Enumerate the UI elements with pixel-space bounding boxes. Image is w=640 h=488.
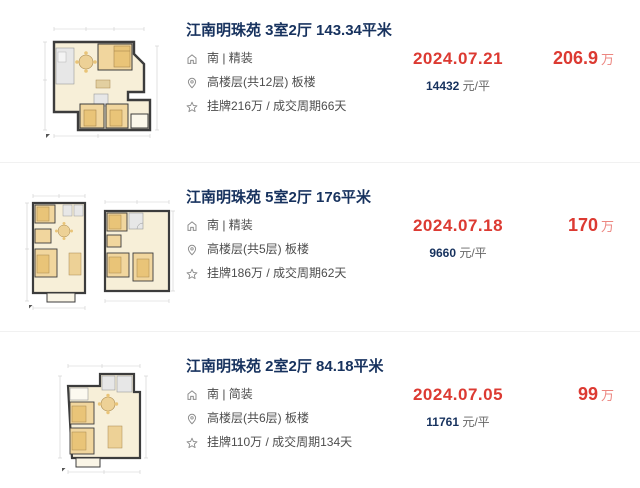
home-icon [186,220,198,232]
floor-plan-image[interactable] [44,358,156,476]
star-icon [186,101,198,113]
deal-listings-page: 江南明珠苑 3室2厅 143.34平米 南 | 精装 高楼层(共12层) 板楼 … [0,0,640,488]
deal-date: 2024.07.18 [402,216,514,236]
home-icon [186,389,198,401]
floor-text: 高楼层(共6层) 板楼 [207,412,309,425]
unit-price-suffix: 元/平 [459,415,490,429]
total-price: 99万 [514,358,614,405]
floor-plan-image[interactable] [97,189,177,311]
unit-price-value: 14432 [426,79,459,93]
listing-cycle-text: 挂牌216万 / 成交周期66天 [207,100,346,113]
listing-cycle-row: 挂牌216万 / 成交周期66天 [186,100,402,113]
listing-cycle-row: 挂牌186万 / 成交周期62天 [186,267,402,280]
deal-date: 2024.07.05 [402,385,514,405]
total-price-value: 99 [578,384,598,404]
listing-row[interactable]: 江南明珠苑 3室2厅 143.34平米 南 | 精装 高楼层(共12层) 板楼 … [0,0,640,162]
floor-row: 高楼层(共6层) 板楼 [186,412,402,425]
floor-text: 高楼层(共12层) 板楼 [207,76,316,89]
unit-price-value: 9660 [429,246,456,260]
listing-row[interactable]: 江南明珠苑 2室2厅 84.18平米 南 | 简装 高楼层(共6层) 板楼 挂牌… [0,331,640,488]
total-price-unit: 万 [601,388,614,403]
deal-date: 2024.07.21 [402,49,514,69]
floor-plan-thumbnail[interactable] [18,22,182,140]
floor-row: 高楼层(共5层) 板楼 [186,243,402,256]
listing-cycle-text: 挂牌186万 / 成交周期62天 [207,267,346,280]
floor-plan-image[interactable] [38,22,163,140]
star-icon [186,437,198,449]
total-price-value: 206.9 [553,48,598,68]
orientation-text: 南 | 精装 [207,52,253,65]
listing-cycle-row: 挂牌110万 / 成交周期134天 [186,436,402,449]
orientation-text: 南 | 精装 [207,219,253,232]
floor-row: 高楼层(共12层) 板楼 [186,76,402,89]
orientation-row: 南 | 精装 [186,219,402,232]
orientation-row: 南 | 简装 [186,388,402,401]
home-icon [186,53,198,65]
unit-price: 9660 元/平 [402,244,514,261]
unit-price-suffix: 元/平 [456,246,487,260]
star-icon [186,268,198,280]
floor-plan-thumbnail[interactable] [18,189,182,311]
total-price-unit: 万 [601,52,614,67]
unit-price: 11761 元/平 [402,413,514,430]
unit-price: 14432 元/平 [402,77,514,94]
floor-plan-thumbnail[interactable] [18,358,182,476]
floor-text: 高楼层(共5层) 板楼 [207,243,309,256]
listing-title[interactable]: 江南明珠苑 3室2厅 143.34平米 [186,22,402,39]
location-pin-icon [186,244,198,256]
unit-price-suffix: 元/平 [459,79,490,93]
total-price-value: 170 [568,215,598,235]
floor-plan-image[interactable] [23,189,95,311]
orientation-row: 南 | 精装 [186,52,402,65]
listing-row[interactable]: 江南明珠苑 5室2厅 176平米 南 | 精装 高楼层(共5层) 板楼 挂牌18… [0,162,640,331]
total-price: 170万 [514,189,614,236]
unit-price-value: 11761 [426,415,459,429]
listing-cycle-text: 挂牌110万 / 成交周期134天 [207,436,352,449]
location-pin-icon [186,77,198,89]
location-pin-icon [186,413,198,425]
listing-title[interactable]: 江南明珠苑 5室2厅 176平米 [186,189,402,206]
orientation-text: 南 | 简装 [207,388,253,401]
total-price: 206.9万 [514,22,614,69]
listing-title[interactable]: 江南明珠苑 2室2厅 84.18平米 [186,358,402,375]
total-price-unit: 万 [601,219,614,234]
